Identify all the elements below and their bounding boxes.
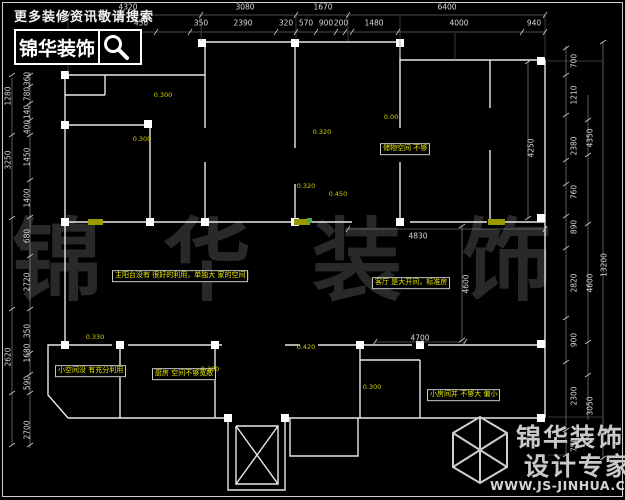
dimension-label: 1280 bbox=[4, 86, 12, 105]
dimension-label: 4700 bbox=[410, 334, 429, 342]
dimension-label: 4250 bbox=[527, 138, 535, 157]
elevation-mark: 0.300 bbox=[363, 384, 382, 391]
elevation-mark: 0.330 bbox=[86, 334, 105, 341]
elevation-mark: 0.320 bbox=[313, 129, 332, 136]
dimension-label: 360 bbox=[23, 72, 31, 86]
footer-website: WWW.JS-JINHUA.COM bbox=[490, 478, 625, 493]
dimension-label: 350 bbox=[23, 324, 31, 338]
dimension-label: 200 bbox=[334, 19, 348, 27]
company-logo-block: 锦华装饰 设计专家 WWW.JS-JINHUA.COM bbox=[440, 408, 625, 500]
dimension-label: 780 bbox=[23, 87, 31, 101]
room-annotation: 主阳台没有 很好的利用，单独大 家的空间 bbox=[112, 270, 248, 282]
dimension-label: 680 bbox=[23, 229, 31, 243]
elevation-mark: 0.320 bbox=[297, 183, 316, 190]
elevation-mark: 0.300 bbox=[201, 366, 220, 373]
elevation-mark: 0.300 bbox=[154, 92, 173, 99]
dimension-label: 940 bbox=[527, 19, 541, 27]
dimension-label: 320 bbox=[279, 19, 293, 27]
dimension-label: 3250 bbox=[4, 150, 12, 169]
room-annotation: 小房间并 不够大 偏小 bbox=[427, 389, 500, 401]
dimension-label: 900 bbox=[570, 333, 578, 347]
dimension-label: 4600 bbox=[586, 273, 594, 292]
dimension-label: 4600 bbox=[462, 274, 470, 293]
cad-floorplan-sheet: 锦华装饰 bbox=[0, 0, 625, 500]
dimension-label: 590 bbox=[23, 376, 31, 390]
dimension-label: 2390 bbox=[233, 19, 252, 27]
elevation-mark: 0.300 bbox=[133, 136, 152, 143]
room-annotation: 客厅 是大开间，标准房 bbox=[372, 277, 450, 289]
header-tagline: 更多装修资讯敬请搜索 bbox=[14, 6, 154, 25]
dimension-label: 350 bbox=[194, 19, 208, 27]
dimension-label: 4000 bbox=[449, 19, 468, 27]
brand-header: 更多装修资讯敬请搜索 锦华装饰 bbox=[14, 6, 154, 65]
elevation-mark: 0.00 bbox=[384, 114, 398, 121]
dimension-label: 4350 bbox=[586, 128, 594, 147]
dimension-label: 760 bbox=[570, 185, 578, 199]
dimension-label: 2700 bbox=[23, 420, 31, 439]
dimension-label: 900 bbox=[319, 19, 333, 27]
search-icon bbox=[100, 31, 132, 63]
dimension-label: 1480 bbox=[364, 19, 383, 27]
room-annotation: 小空间没 有充分利用 bbox=[55, 365, 126, 377]
dimension-label: 570 bbox=[299, 19, 313, 27]
dimension-label: 1670 bbox=[313, 3, 332, 11]
elevation-mark: 0.450 bbox=[329, 191, 348, 198]
dimension-label: 4830 bbox=[408, 232, 427, 240]
dimension-label: 2720 bbox=[23, 272, 31, 291]
dimension-label: 890 bbox=[570, 220, 578, 234]
dimension-label: 6400 bbox=[437, 3, 456, 11]
cube-logo-icon bbox=[448, 414, 512, 486]
dimension-label: 700 bbox=[570, 54, 578, 68]
dimension-label: 1400 bbox=[23, 188, 31, 207]
dimension-label: 1450 bbox=[23, 147, 31, 166]
dimension-label: 2820 bbox=[570, 273, 578, 292]
dimension-label: 1680 bbox=[23, 343, 31, 362]
room-annotation: 储物空间 不够 bbox=[380, 143, 430, 155]
dimension-label: 140 bbox=[23, 105, 31, 119]
dimension-label: 2620 bbox=[4, 347, 12, 366]
elevation-mark: 0.420 bbox=[297, 344, 316, 351]
dimension-label: 2300 bbox=[570, 386, 578, 405]
dimension-label: 1210 bbox=[570, 85, 578, 104]
brand-name: 锦华装饰 bbox=[16, 34, 98, 61]
brand-search-box: 锦华装饰 bbox=[14, 29, 142, 65]
dimension-label: 2380 bbox=[570, 136, 578, 155]
dimension-label: 3080 bbox=[235, 3, 254, 11]
dimension-label: 400 bbox=[23, 120, 31, 134]
dimension-label: 13200 bbox=[600, 253, 608, 277]
